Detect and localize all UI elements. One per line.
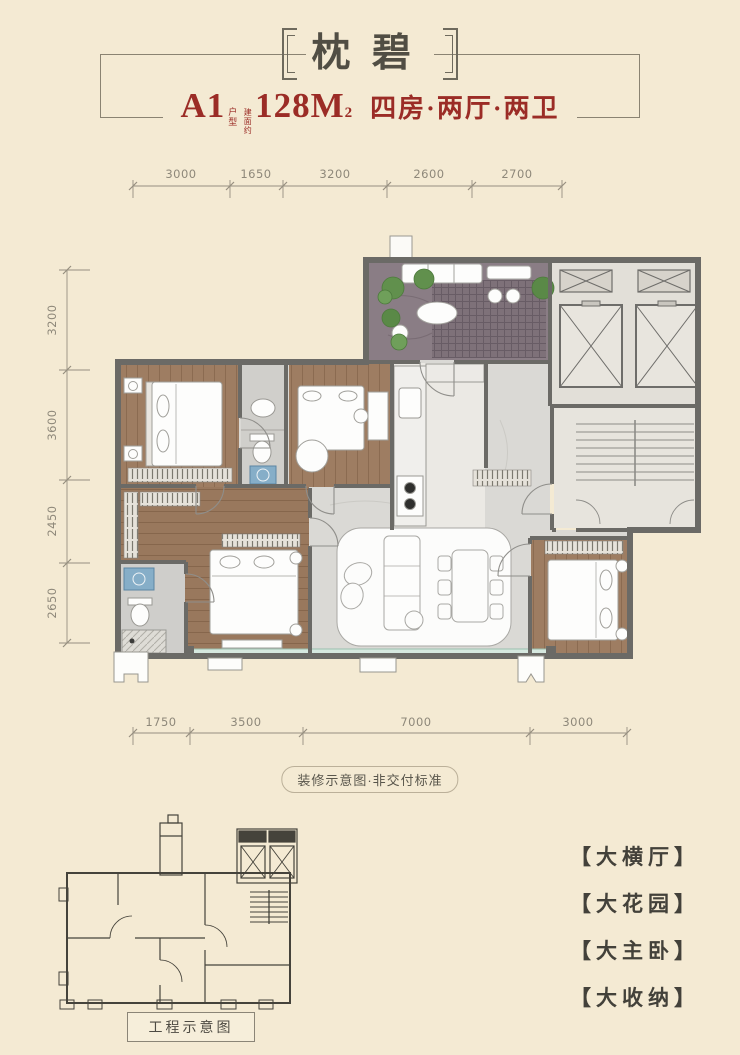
svg-text:3200: 3200 <box>319 167 350 181</box>
svg-text:3500: 3500 <box>230 715 261 729</box>
feature-item: 【大花园】 <box>570 893 700 915</box>
dimension-chain-top: 3000 1650 3200 2600 2700 <box>129 167 566 198</box>
floorplan-poster: 枕碧 A1 户型 建面约 128M 2 四房·两厅·两卫 <box>0 0 740 1055</box>
dimension-chain-left: 3200 3600 2450 2650 <box>45 266 90 647</box>
svg-text:2700: 2700 <box>501 167 532 181</box>
svg-text:3200: 3200 <box>45 304 59 335</box>
svg-text:7000: 7000 <box>400 715 431 729</box>
terrace-garden <box>368 236 554 360</box>
svg-text:3600: 3600 <box>45 409 59 440</box>
engineering-diagram <box>59 815 297 1009</box>
main-floorplan <box>114 236 698 682</box>
living-dining-furniture <box>337 528 511 646</box>
svg-text:2450: 2450 <box>45 505 59 536</box>
feature-item: 【大横厅】 <box>570 846 700 868</box>
svg-text:2650: 2650 <box>45 587 59 618</box>
svg-text:3000: 3000 <box>562 715 593 729</box>
decor-note-pill: 装修示意图·非交付标准 <box>281 766 458 793</box>
svg-text:1750: 1750 <box>145 715 176 729</box>
svg-text:3000: 3000 <box>165 167 196 181</box>
bedroom-3-furniture <box>548 560 628 640</box>
dimension-chain-bottom: 1750 3500 7000 3000 <box>129 715 631 745</box>
svg-text:2600: 2600 <box>413 167 444 181</box>
engineering-note-label: 工程示意图 <box>127 1012 255 1042</box>
svg-text:1650: 1650 <box>240 167 271 181</box>
feature-item: 【大主卧】 <box>570 940 700 962</box>
master-bedroom-furniture <box>210 550 302 648</box>
feature-list: 【大横厅】 【大花园】 【大主卧】 【大收纳】 <box>570 846 700 1009</box>
feature-item: 【大收纳】 <box>570 987 700 1009</box>
